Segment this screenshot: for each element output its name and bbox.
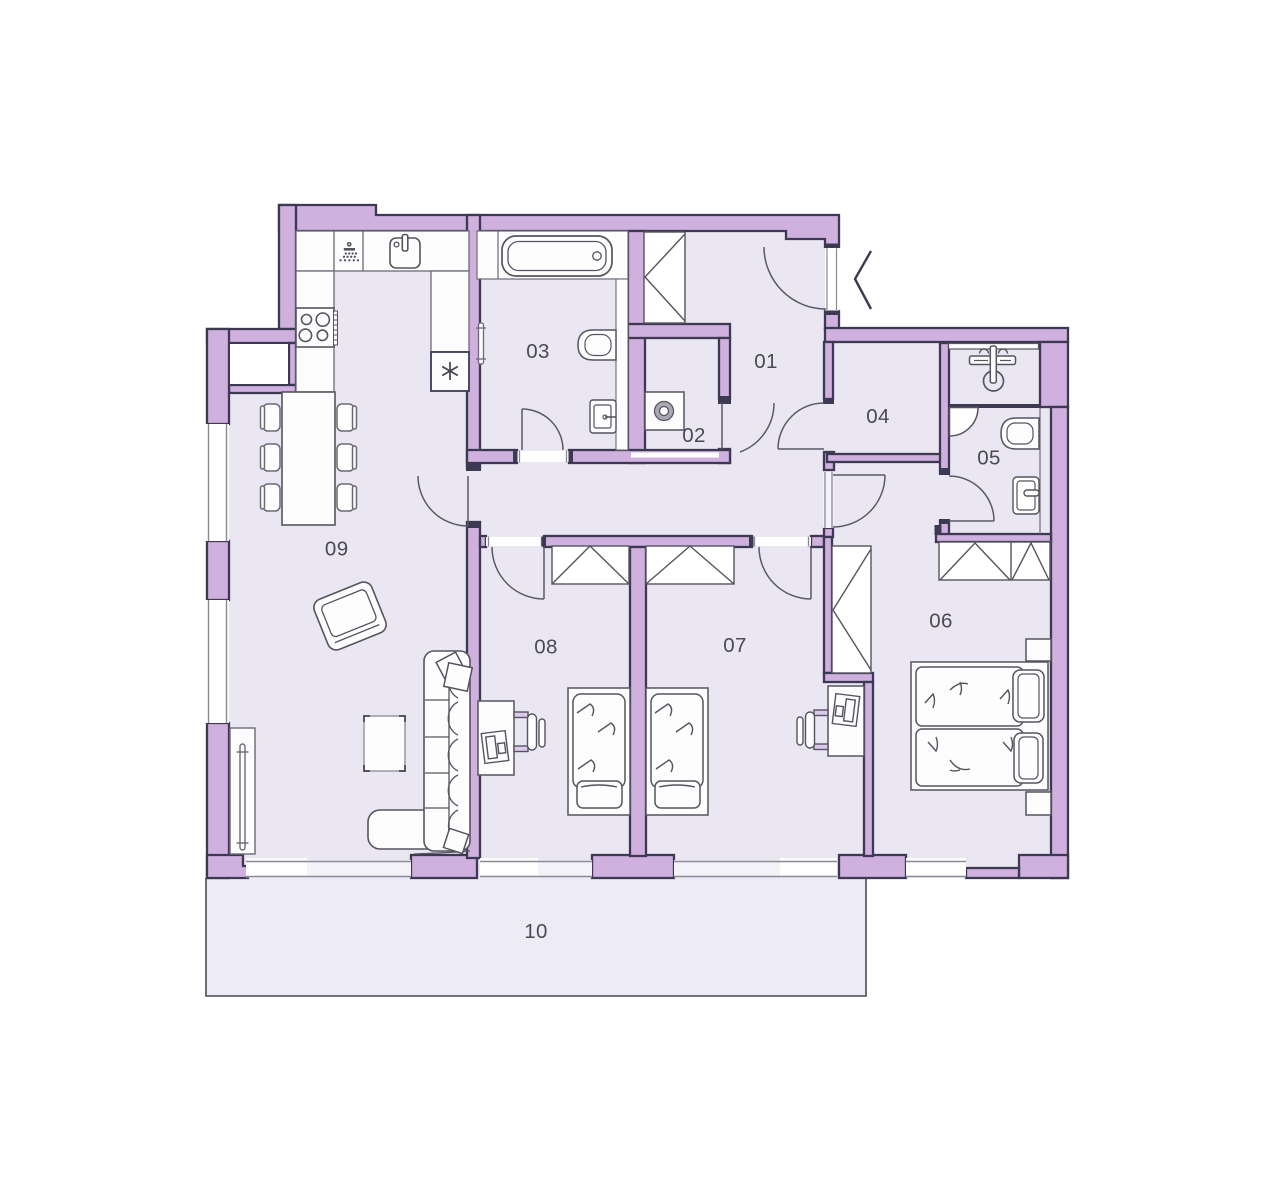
svg-text:08: 08	[534, 636, 558, 659]
svg-text:09: 09	[325, 538, 349, 561]
svg-text:05: 05	[977, 447, 1001, 470]
svg-text:03: 03	[526, 340, 550, 363]
svg-text:04: 04	[866, 405, 890, 428]
svg-text:06: 06	[929, 610, 953, 633]
svg-text:02: 02	[682, 424, 706, 447]
svg-text:01: 01	[754, 350, 778, 373]
svg-text:10: 10	[524, 920, 548, 943]
svg-text:07: 07	[723, 634, 747, 657]
